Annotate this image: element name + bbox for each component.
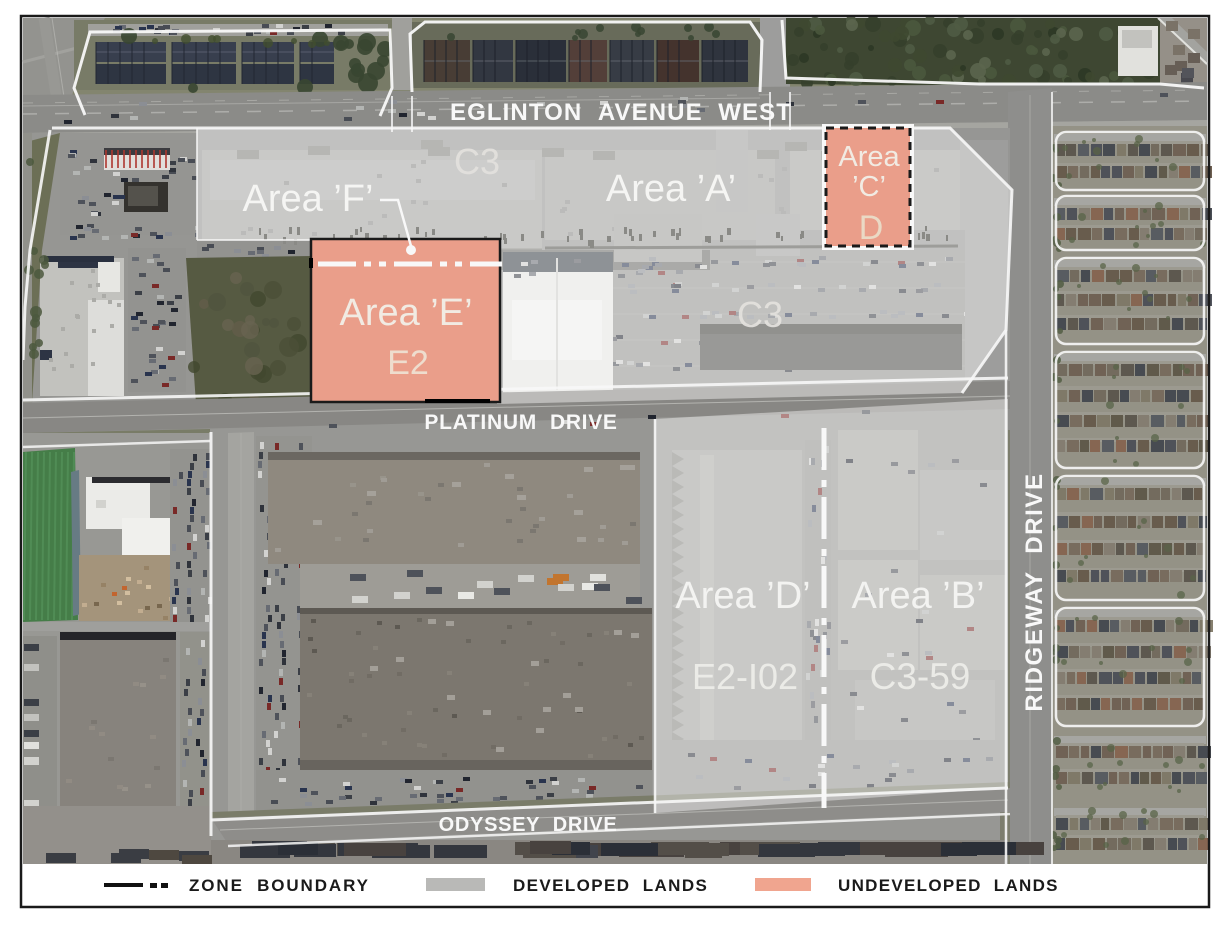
svg-text:DEVELOPED LANDS: DEVELOPED LANDS [513,876,708,895]
svg-text:ZONE BOUNDARY: ZONE BOUNDARY [189,876,370,895]
svg-text:UNDEVELOPED LANDS: UNDEVELOPED LANDS [838,876,1059,895]
